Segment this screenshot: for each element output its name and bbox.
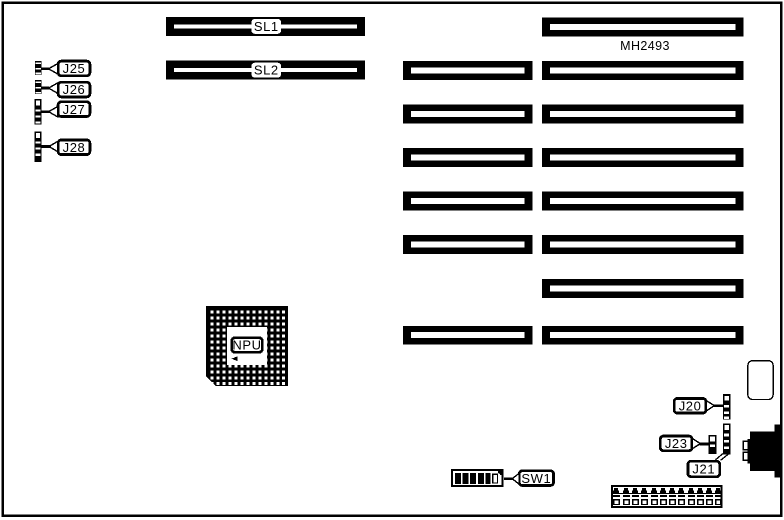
svg-text:J26: J26: [63, 82, 86, 97]
svg-text:SW1: SW1: [521, 471, 551, 486]
svg-text:J20: J20: [679, 398, 702, 413]
svg-text:J28: J28: [63, 140, 86, 155]
svg-text:MH2493: MH2493: [620, 39, 670, 53]
svg-text:SL1: SL1: [254, 19, 279, 34]
svg-text:NPU: NPU: [232, 338, 261, 353]
svg-text:J21: J21: [692, 462, 715, 477]
svg-text:J27: J27: [63, 102, 86, 117]
svg-text:J23: J23: [665, 436, 688, 451]
svg-text:J25: J25: [63, 61, 86, 76]
svg-text:SL2: SL2: [254, 63, 279, 78]
